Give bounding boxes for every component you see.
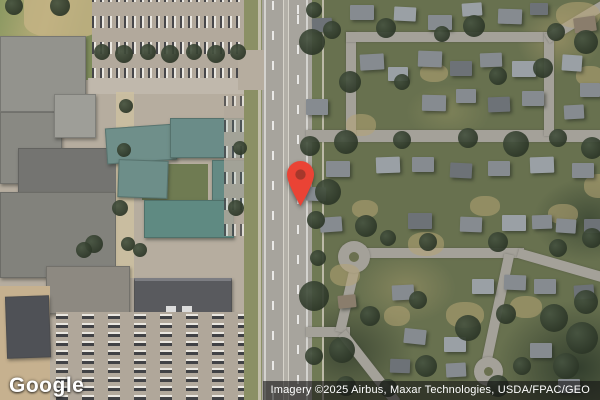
- campus-area: [0, 0, 262, 400]
- teal-roof-building: [144, 200, 234, 238]
- road-edge-line: [264, 0, 266, 400]
- teal-roof-building: [105, 124, 177, 165]
- location-pin-icon[interactable]: [287, 161, 314, 206]
- tree: [299, 29, 325, 55]
- pin-inner-circle: [295, 169, 305, 179]
- parking-strip: [224, 96, 262, 236]
- pin-body: [287, 161, 314, 206]
- tree: [305, 347, 323, 365]
- parking-lot-top: [92, 0, 262, 80]
- parking-lot-bottom: [56, 312, 262, 400]
- residential-area: [324, 0, 600, 400]
- google-logo[interactable]: Google: [9, 374, 84, 396]
- lane-marking: [272, 0, 274, 400]
- dark-roof-building: [5, 295, 51, 358]
- map-attribution: Imagery ©2025 Airbus, Maxar Technologies…: [263, 381, 600, 400]
- tree: [300, 136, 320, 156]
- satellite-map-canvas[interactable]: Google Imagery ©2025 Airbus, Maxar Techn…: [0, 0, 600, 400]
- building-roof: [54, 94, 96, 138]
- tree: [307, 211, 325, 229]
- tree: [306, 2, 322, 18]
- building-roof: [46, 266, 130, 314]
- teal-roof-building: [117, 159, 168, 199]
- driveway: [88, 78, 262, 94]
